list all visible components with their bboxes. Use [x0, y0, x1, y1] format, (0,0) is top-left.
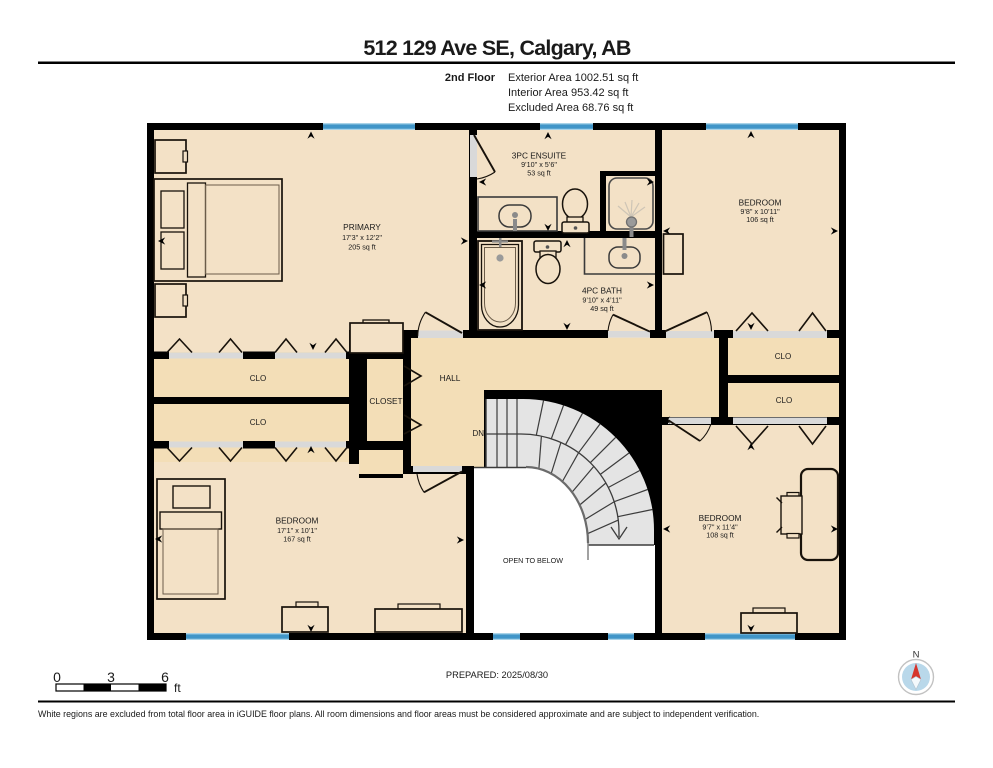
svg-text:White regions are excluded fro: White regions are excluded from total fl…	[38, 709, 759, 719]
svg-text:3PC ENSUITE: 3PC ENSUITE	[512, 151, 567, 161]
svg-text:Excluded Area 68.76 sq ft: Excluded Area 68.76 sq ft	[508, 102, 633, 114]
svg-text:BEDROOM: BEDROOM	[276, 516, 319, 526]
svg-text:OPEN TO BELOW: OPEN TO BELOW	[503, 556, 563, 565]
svg-text:CLO: CLO	[250, 418, 266, 427]
svg-text:CLO: CLO	[250, 374, 266, 383]
svg-text:205 sq ft: 205 sq ft	[348, 243, 376, 252]
svg-text:Exterior Area 1002.51 sq ft: Exterior Area 1002.51 sq ft	[508, 72, 638, 84]
svg-text:2nd Floor: 2nd Floor	[445, 72, 496, 84]
svg-text:HALL: HALL	[440, 373, 461, 383]
svg-text:0: 0	[53, 669, 61, 685]
svg-text:53 sq ft: 53 sq ft	[527, 169, 551, 178]
svg-text:6: 6	[161, 669, 169, 685]
svg-text:CLO: CLO	[776, 396, 792, 405]
svg-text:DN: DN	[472, 429, 484, 438]
svg-text:Interior Area 953.42 sq ft: Interior Area 953.42 sq ft	[508, 87, 628, 99]
svg-text:N: N	[913, 650, 920, 661]
svg-text:108 sq ft: 108 sq ft	[706, 531, 734, 540]
svg-text:PRIMARY: PRIMARY	[343, 222, 381, 232]
svg-text:CLOSET: CLOSET	[369, 396, 402, 406]
svg-text:ft: ft	[174, 681, 181, 695]
svg-text:BEDROOM: BEDROOM	[739, 198, 782, 208]
svg-text:3: 3	[107, 669, 115, 685]
svg-text:512 129 Ave SE, Calgary, AB: 512 129 Ave SE, Calgary, AB	[363, 36, 631, 60]
svg-text:BEDROOM: BEDROOM	[699, 513, 742, 523]
svg-text:49 sq ft: 49 sq ft	[590, 304, 614, 313]
svg-text:106 sq ft: 106 sq ft	[746, 215, 774, 224]
svg-text:PREPARED: 2025/08/30: PREPARED: 2025/08/30	[446, 670, 548, 680]
svg-text:167 sq ft: 167 sq ft	[283, 535, 311, 544]
svg-text:4PC BATH: 4PC BATH	[582, 286, 622, 296]
svg-text:17’3" x 12’2": 17’3" x 12’2"	[342, 233, 382, 242]
svg-text:CLO: CLO	[775, 352, 791, 361]
